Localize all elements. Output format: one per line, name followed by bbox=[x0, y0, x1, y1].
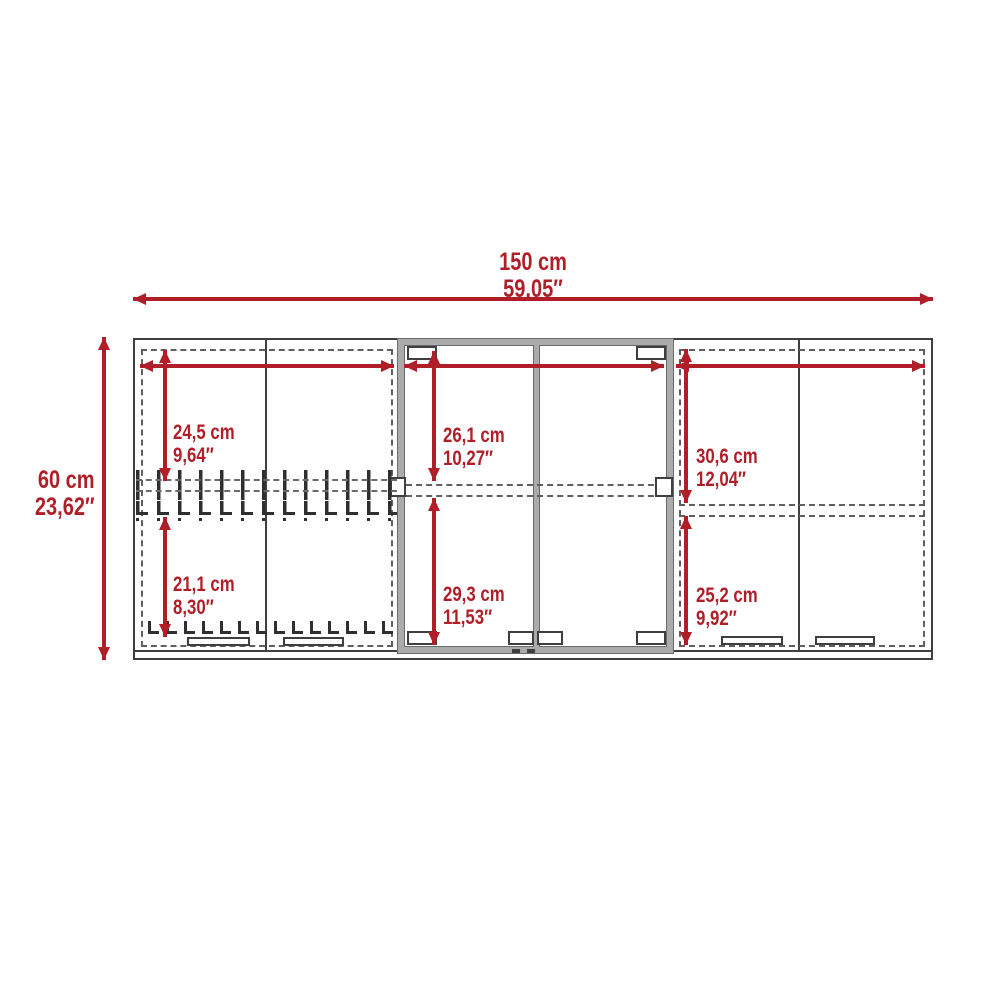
center-bottom-label: 29,3 cm 11,53″ bbox=[443, 583, 505, 629]
overall-width-inch: 59,05″ bbox=[499, 276, 567, 303]
stemware-rack-rail-dashed-2 bbox=[136, 490, 397, 492]
overall-height-arrow bbox=[102, 337, 106, 660]
center-bottom-cm: 29,3 cm bbox=[443, 583, 505, 606]
right-top-cm: 30,6 cm bbox=[696, 445, 758, 468]
right-bottom-cm: 25,2 cm bbox=[696, 584, 758, 607]
right-bottom-inch: 9,92″ bbox=[696, 607, 758, 630]
center-bottom-inch: 11,53″ bbox=[443, 606, 505, 629]
center-top-label: 26,1 cm 10,27″ bbox=[443, 424, 505, 470]
left-bottom-inch: 8,30″ bbox=[173, 596, 235, 619]
overall-height-inch: 23,62″ bbox=[35, 494, 95, 521]
left-bottom-label: 21,1 cm 8,30″ bbox=[173, 573, 235, 619]
stemware-rack-bowls bbox=[136, 470, 397, 500]
bottom-rail-left-2 bbox=[283, 637, 344, 646]
right-shelf-dashed-line-1 bbox=[679, 504, 925, 506]
left-top-label: 24,5 cm 9,64″ bbox=[173, 421, 235, 467]
door-alignment-mark-left bbox=[512, 649, 520, 653]
door-alignment-mark-right bbox=[527, 649, 535, 653]
center-top-inch: 10,27″ bbox=[443, 447, 505, 470]
left-top-inch: 9,64″ bbox=[173, 444, 235, 467]
overall-height-cm: 60 cm bbox=[35, 467, 95, 494]
cup-hooks-caps bbox=[148, 631, 396, 634]
center-bottom-height-arrow bbox=[432, 498, 436, 645]
right-top-inch: 12,04″ bbox=[696, 468, 758, 491]
hinge-top-right bbox=[636, 346, 666, 360]
stemware-rack-base-dots bbox=[136, 518, 397, 521]
left-top-cm: 24,5 cm bbox=[173, 421, 235, 444]
center-top-cm: 26,1 cm bbox=[443, 424, 505, 447]
shelf-latch-right bbox=[655, 477, 673, 497]
left-section-width-arrow bbox=[140, 364, 394, 368]
bottom-rail-left-1 bbox=[187, 637, 250, 646]
stemware-rack-bases bbox=[136, 512, 397, 515]
right-bottom-label: 25,2 cm 9,92″ bbox=[696, 584, 758, 630]
stemware-rack-rail-dashed-1 bbox=[136, 479, 397, 481]
hinge-bottom-right bbox=[636, 631, 666, 645]
right-shelf-dashed-line-2 bbox=[679, 515, 925, 517]
hinge-bottom-center-left bbox=[508, 631, 534, 645]
center-section-width-arrow bbox=[404, 364, 664, 368]
right-top-label: 30,6 cm 12,04″ bbox=[696, 445, 758, 491]
dimension-diagram: 150 cm 59,05″ 60 cm 23,62″ bbox=[0, 0, 1000, 1000]
glass-shelf-dashed-line-2 bbox=[406, 495, 664, 497]
hinge-bottom-center-right bbox=[537, 631, 563, 645]
left-bottom-cm: 21,1 cm bbox=[173, 573, 235, 596]
left-bottom-height-arrow bbox=[163, 517, 167, 637]
bottom-rail-right-1 bbox=[721, 636, 783, 645]
overall-height-label: 60 cm 23,62″ bbox=[35, 467, 95, 521]
glass-shelf-dashed-line-1 bbox=[406, 484, 664, 486]
left-top-height-arrow bbox=[163, 350, 167, 481]
overall-width-cm: 150 cm bbox=[499, 249, 567, 276]
right-top-height-arrow bbox=[684, 349, 688, 503]
overall-width-label: 150 cm 59,05″ bbox=[499, 249, 567, 303]
bottom-rail-right-2 bbox=[815, 636, 875, 645]
right-bottom-height-arrow bbox=[684, 516, 688, 645]
right-section-width-arrow bbox=[676, 364, 925, 368]
center-top-height-arrow bbox=[432, 351, 436, 481]
